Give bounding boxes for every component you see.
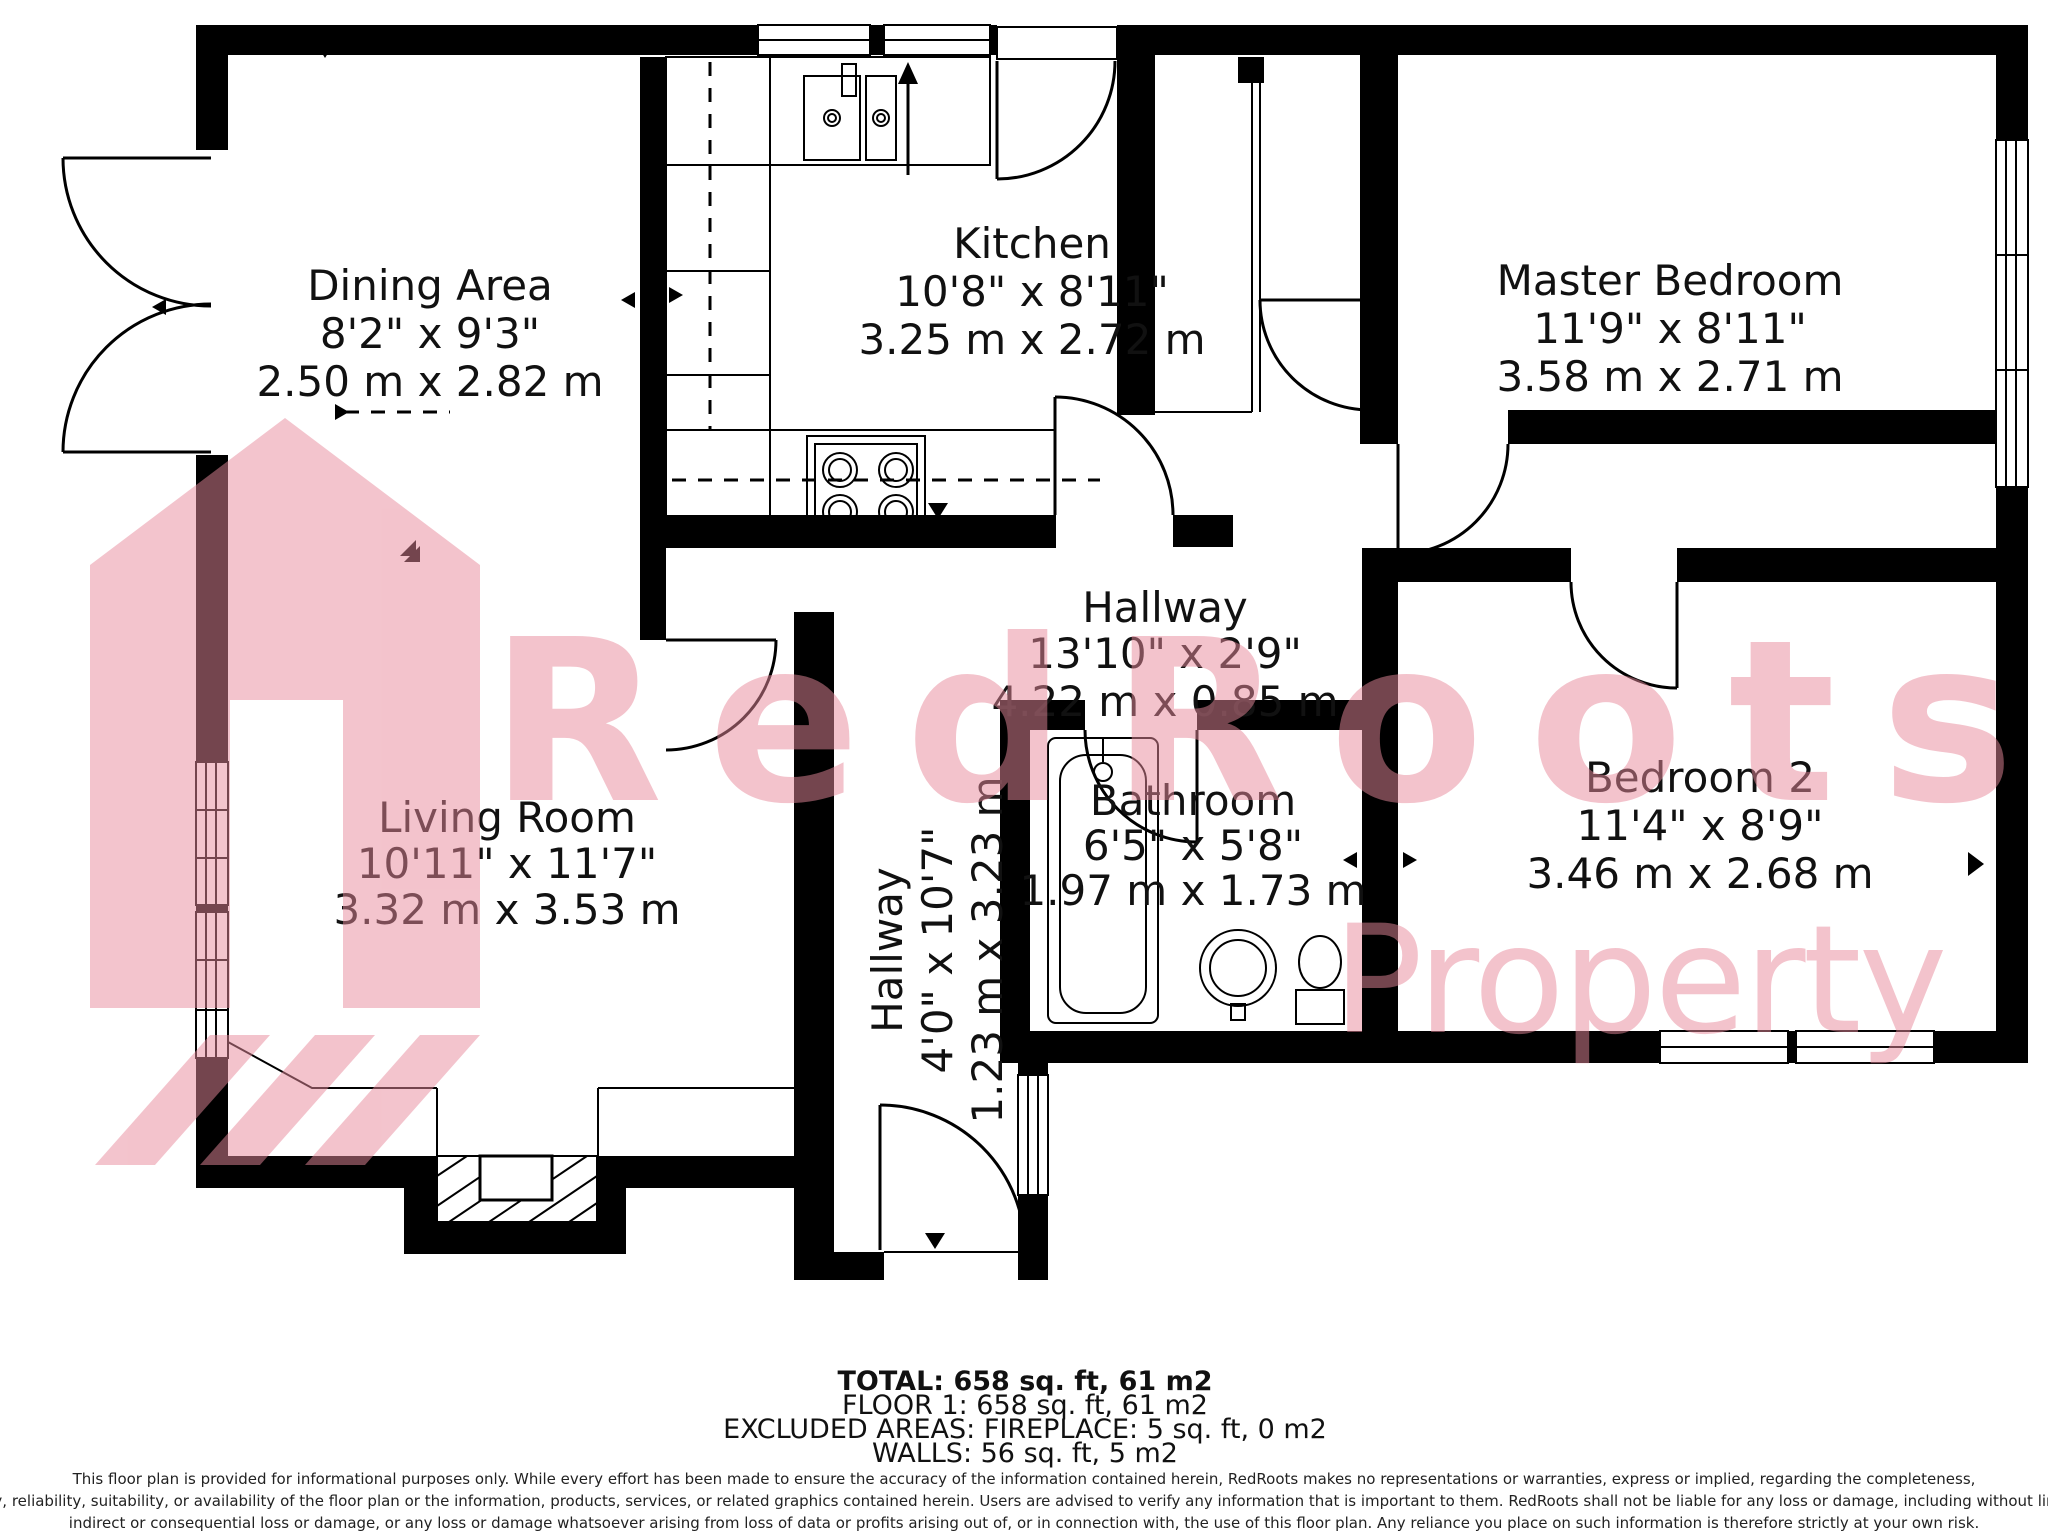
arrow-head: [898, 62, 918, 84]
room-dims-imperial: 4'0" x 10'7": [913, 827, 962, 1074]
house-logo-icon: [90, 418, 480, 1008]
floor-plan-canvas: Dining Area 8'2" x 9'3" 2.50 m x 2.82 m …: [0, 0, 2048, 1536]
hallway-window: [1018, 1075, 1048, 1195]
watermark-brand: RedRoots: [490, 592, 2015, 854]
room-name: Master Bedroom: [1497, 256, 1844, 305]
room-dims-imperial: 10'8" x 8'11": [895, 267, 1169, 316]
room-label-dining-area: Dining Area 8'2" x 9'3" 2.50 m x 2.82 m: [256, 261, 603, 406]
door-arc: [997, 61, 1115, 179]
marker-triangle: [621, 292, 635, 308]
marker-triangle: [1968, 852, 1984, 876]
door-arc: [1398, 444, 1508, 554]
room-dims-imperial: 8'2" x 9'3": [320, 309, 540, 358]
room-label-master-bedroom: Master Bedroom 11'9" x 8'11" 3.58 m x 2.…: [1496, 256, 1843, 401]
kitchen-sink: [804, 64, 896, 160]
disclaimer-line-2: accuracy, reliability, suitability, or a…: [0, 1492, 2048, 1510]
room-name: Dining Area: [307, 261, 553, 310]
disclaimer-line-3: indirect or consequential loss or damage…: [69, 1514, 1979, 1532]
french-doors: [63, 150, 228, 455]
room-name: Kitchen: [953, 219, 1111, 268]
door-arc: [63, 158, 211, 306]
watermark-sub: Property: [1333, 894, 1948, 1068]
marker-triangle: [335, 404, 349, 420]
room-dims-metric: 3.46 m x 2.68 m: [1526, 849, 1873, 898]
disclaimer: This floor plan is provided for informat…: [0, 1470, 2048, 1532]
summary-block: TOTAL: 658 sq. ft, 61 m2 FLOOR 1: 658 sq…: [723, 1366, 1327, 1469]
master-bedroom-window: [1996, 140, 2028, 487]
door-arc: [63, 304, 211, 452]
room-dims-metric: 3.58 m x 2.71 m: [1496, 352, 1843, 401]
kitchen-window: [758, 25, 1117, 59]
door-arc: [1260, 300, 1370, 410]
fireplace: [437, 1156, 597, 1222]
kitchen-arrow: [898, 62, 918, 175]
room-dims-metric: 2.50 m x 2.82 m: [256, 357, 603, 406]
marker-triangle: [669, 287, 683, 303]
disclaimer-line-1: This floor plan is provided for informat…: [72, 1470, 1976, 1488]
room-dims-imperial: 11'9" x 8'11": [1533, 304, 1807, 353]
room-dims-metric: 3.25 m x 2.72 m: [858, 315, 1205, 364]
kitchen-hallway-door: [1055, 397, 1173, 515]
floor-plan-page: Dining Area 8'2" x 9'3" 2.50 m x 2.82 m …: [0, 0, 2048, 1536]
door-arc: [1055, 397, 1173, 515]
room-dims-metric: 1.97 m x 1.73 m: [1019, 866, 1366, 915]
door-arc: [880, 1105, 1025, 1250]
front-door: [880, 1105, 1025, 1252]
master-bedroom-door: [1398, 444, 1508, 554]
room-name: Hallway: [863, 867, 912, 1033]
marker-triangle: [1403, 852, 1417, 868]
logo-stripes-icon: [95, 1035, 480, 1165]
summary-walls: WALLS: 56 sq. ft, 5 m2: [872, 1438, 1178, 1469]
marker-triangle: [925, 1233, 945, 1249]
washbasin: [1200, 930, 1276, 1020]
kitchen-top-door: [997, 61, 1115, 179]
